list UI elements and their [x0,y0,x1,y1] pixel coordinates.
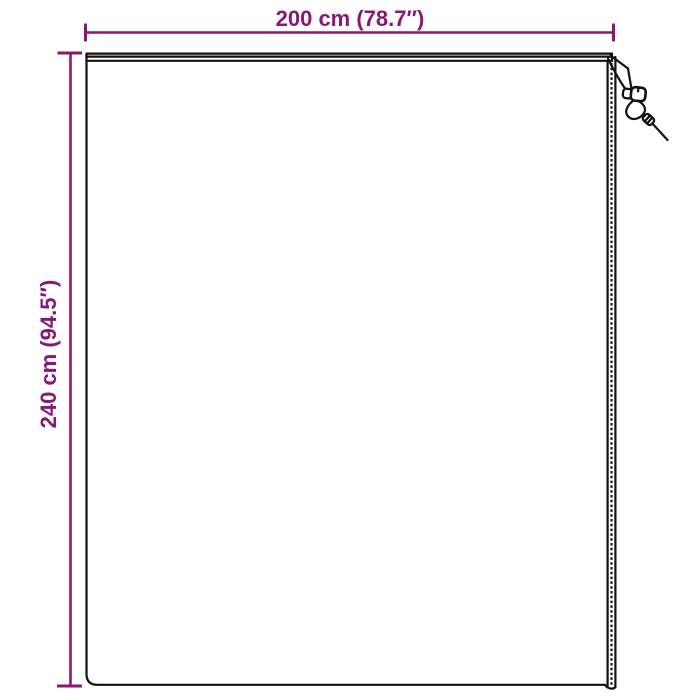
diagram-canvas [0,0,700,700]
dimension-diagram: 200 cm (78.7″) 240 cm (94.5″) [0,0,700,700]
width-dimension-label: 200 cm (78.7″) [276,6,425,32]
height-dimension-label: 240 cm (94.5″) [36,280,62,429]
cord-lock-toggle [622,86,646,102]
top-hem [87,54,613,61]
bag-outline [87,54,606,685]
zipper-edge [605,57,615,689]
cord-end-clip [642,113,656,126]
